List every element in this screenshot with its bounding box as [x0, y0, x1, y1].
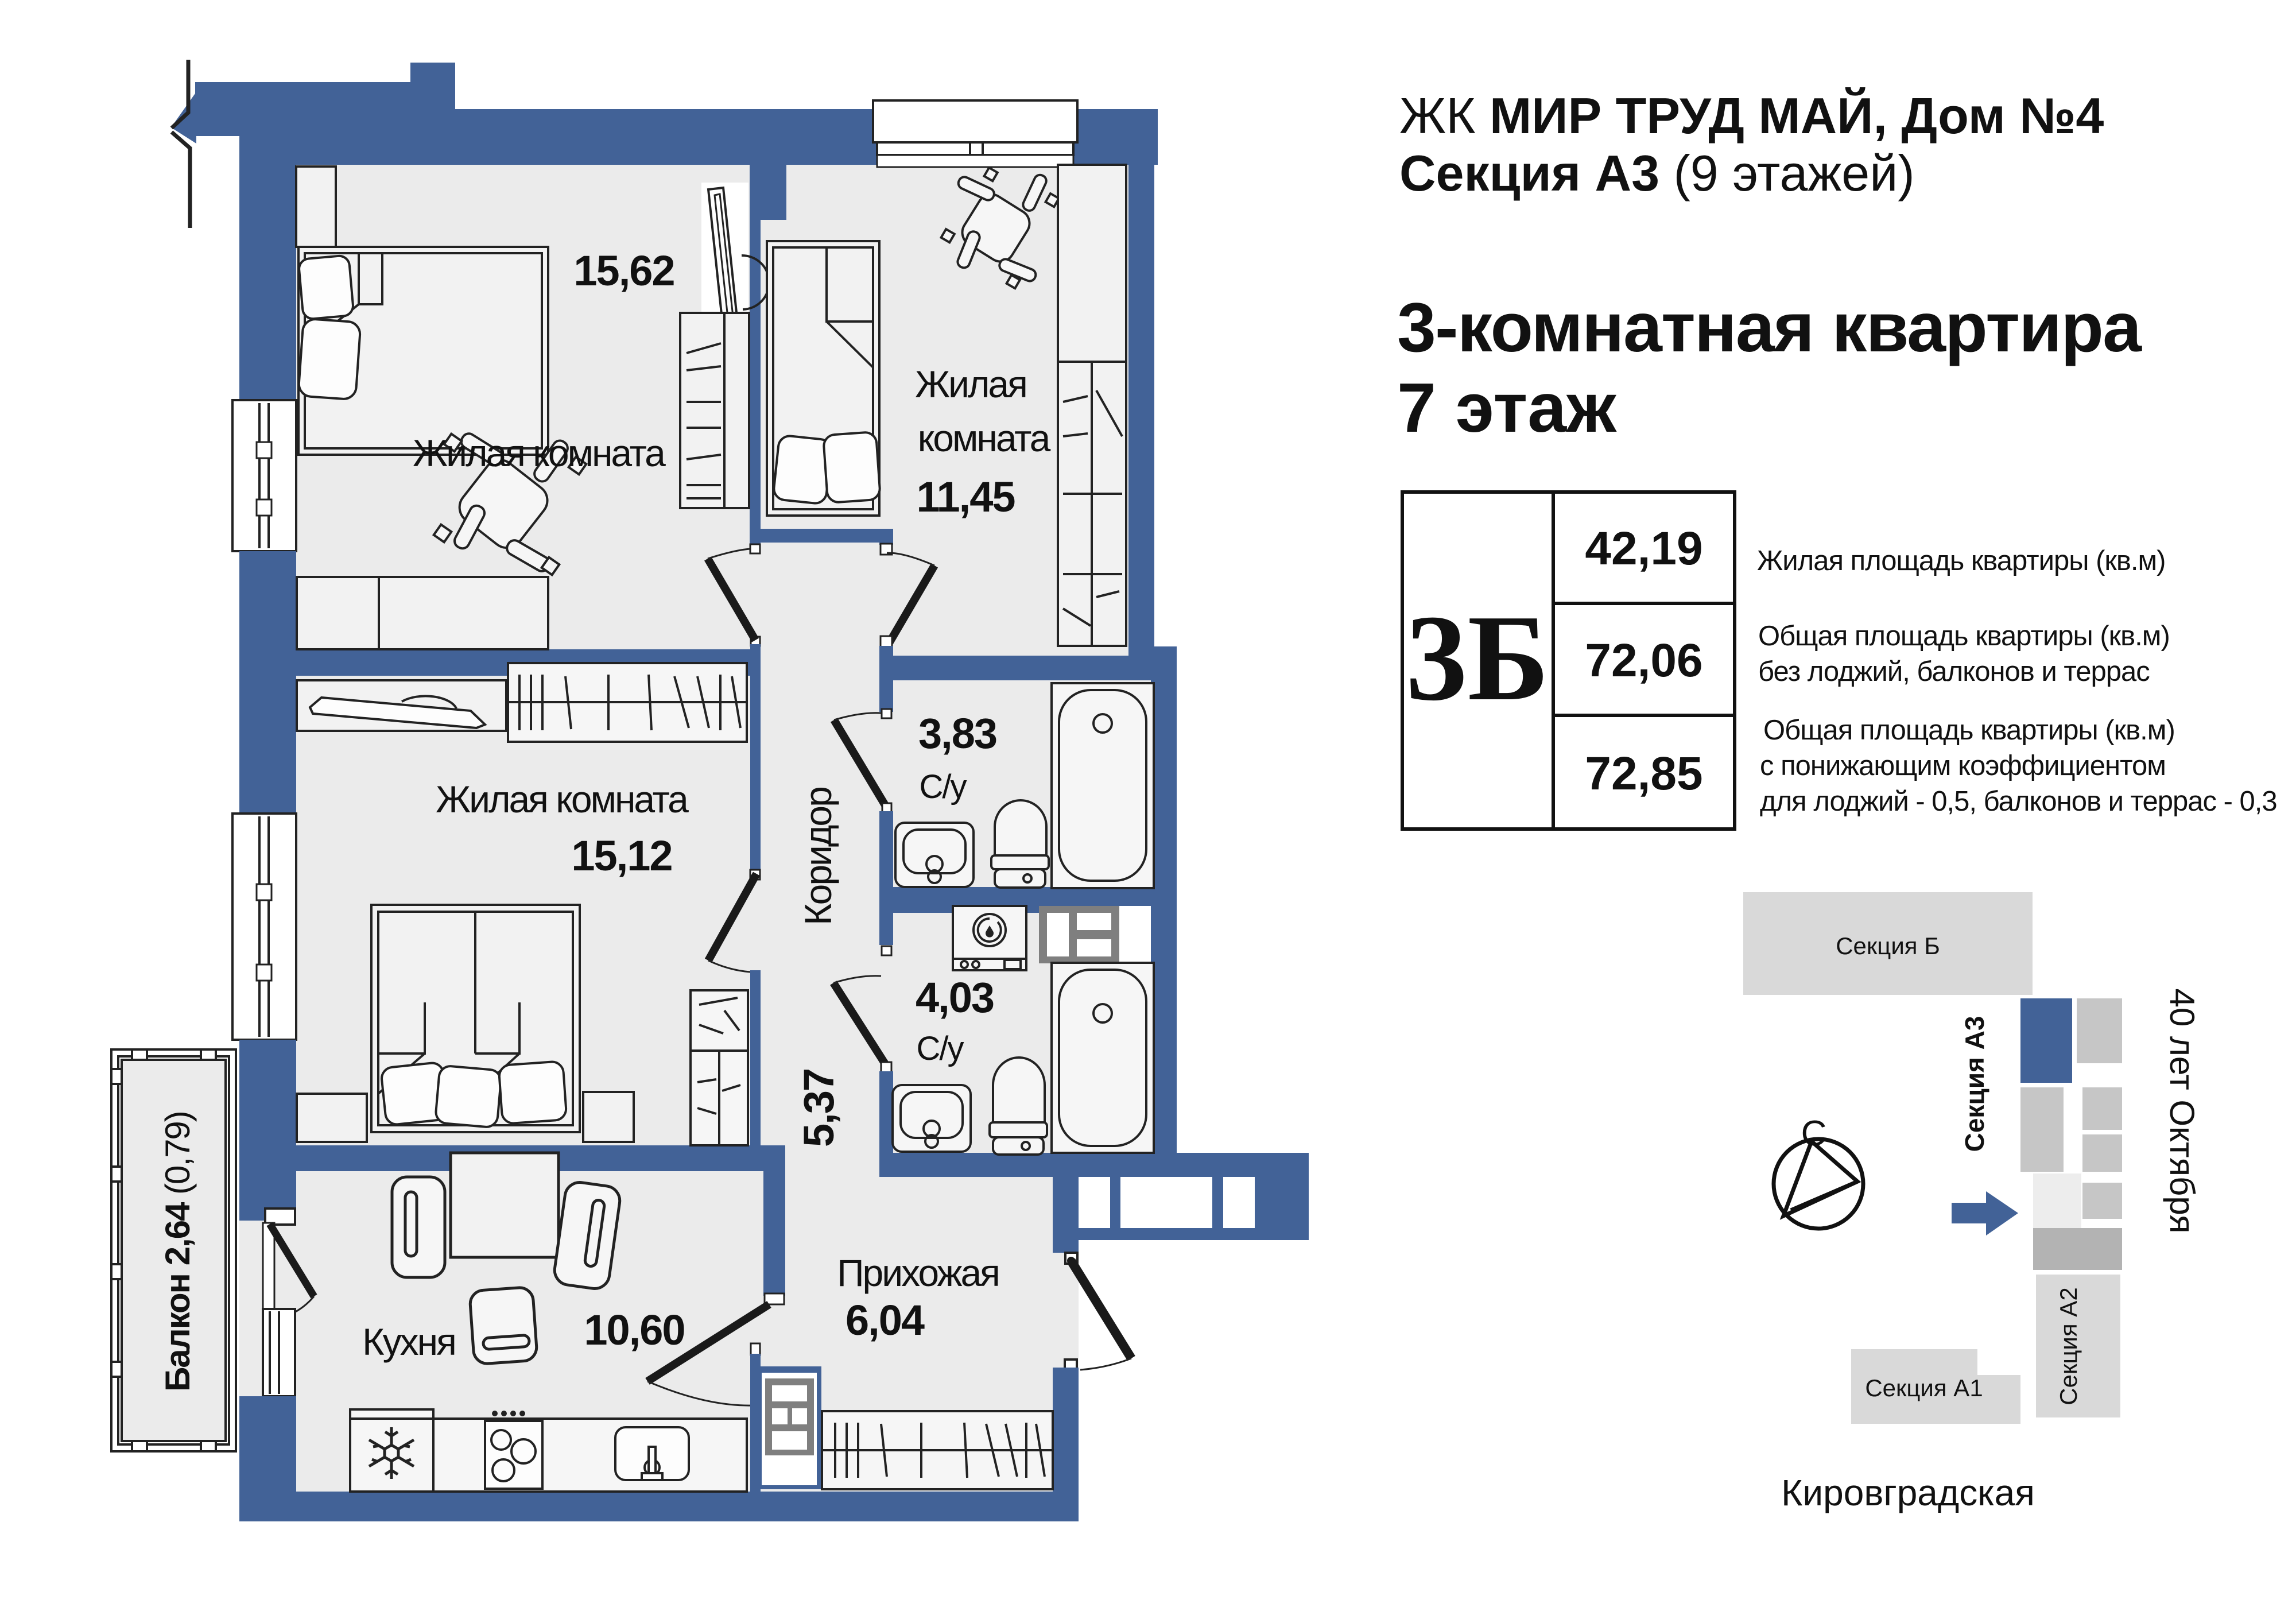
svg-text:Секция Б: Секция Б: [1836, 932, 1940, 959]
svg-text:3-комнатная квартира: 3-комнатная квартира: [1397, 288, 2142, 366]
svg-text:15,62: 15,62: [573, 247, 674, 295]
svg-text:Секция А3: Секция А3: [1960, 1016, 1989, 1152]
svg-text:11,45: 11,45: [916, 473, 1015, 521]
svg-text:72,85: 72,85: [1585, 747, 1702, 800]
svg-text:Кухня: Кухня: [362, 1320, 455, 1363]
svg-text:Прихожая: Прихожая: [837, 1252, 999, 1294]
svg-text:Жилая: Жилая: [915, 363, 1026, 405]
svg-text:без лоджий, балконов и террас: без лоджий, балконов и террас: [1758, 656, 2150, 687]
svg-text:6,04: 6,04: [846, 1296, 925, 1344]
svg-text:Секция А1: Секция А1: [1865, 1374, 1983, 1401]
svg-text:Жилая комната: Жилая комната: [436, 778, 689, 820]
svg-text:Кировградская: Кировградская: [1781, 1472, 2035, 1513]
svg-text:7 этаж: 7 этаж: [1397, 369, 1617, 447]
svg-text:3Б: 3Б: [1406, 589, 1549, 726]
svg-text:Балкон 2,64 (0,79): Балкон 2,64 (0,79): [158, 1111, 197, 1392]
svg-text:Жилая площадь квартиры (кв.м): Жилая площадь квартиры (кв.м): [1757, 545, 2165, 576]
svg-text:4,03: 4,03: [916, 974, 994, 1021]
svg-text:3,83: 3,83: [918, 710, 996, 757]
svg-text:Общая площадь квартиры (кв.м): Общая площадь квартиры (кв.м): [1758, 621, 2170, 652]
svg-text:72,06: 72,06: [1585, 634, 1702, 687]
svg-text:10,60: 10,60: [584, 1306, 684, 1354]
svg-text:5,37: 5,37: [795, 1069, 843, 1147]
svg-text:42,19: 42,19: [1585, 522, 1702, 575]
svg-text:комната: комната: [918, 417, 1051, 459]
svg-text:С: С: [1801, 1114, 1827, 1153]
svg-text:15,12: 15,12: [571, 832, 672, 880]
svg-text:ЖК МИР ТРУД МАЙ, Дом №4: ЖК МИР ТРУД МАЙ, Дом №4: [1399, 87, 2104, 144]
svg-text:Жилая комната: Жилая комната: [413, 432, 666, 474]
svg-text:Общая площадь квартиры (кв.м): Общая площадь квартиры (кв.м): [1763, 715, 2175, 746]
svg-text:С/у: С/у: [917, 1030, 964, 1067]
svg-text:Секция А2: Секция А2: [2055, 1287, 2082, 1405]
svg-text:с понижающим коэффициентом: с понижающим коэффициентом: [1760, 750, 2166, 781]
svg-text:Секция А3 (9 этажей): Секция А3 (9 этажей): [1399, 145, 1915, 202]
svg-text:Коридор: Коридор: [797, 788, 839, 925]
svg-text:40 лет Октября: 40 лет Октября: [2163, 988, 2201, 1233]
svg-text:для лоджий - 0,5, балконов и т: для лоджий - 0,5, балконов и террас - 0,…: [1760, 786, 2277, 817]
svg-text:С/у: С/у: [920, 768, 967, 805]
